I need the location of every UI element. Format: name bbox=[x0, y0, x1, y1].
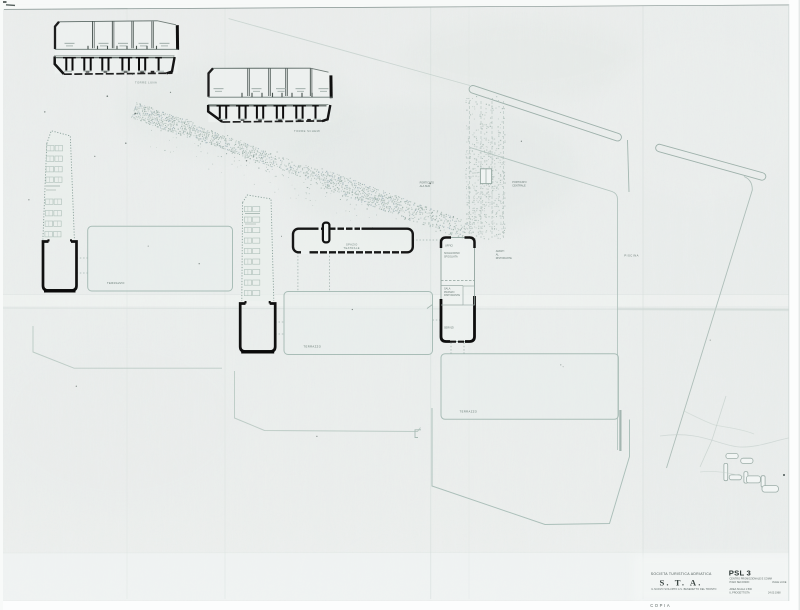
svg-text:SOCIETA TURISTICA ADRIATICA: SOCIETA TURISTICA ADRIATICA bbox=[651, 572, 712, 576]
svg-text:TORRE SCHEMI: TORRE SCHEMI bbox=[294, 129, 321, 133]
svg-text:AREA SCALA 1:500: AREA SCALA 1:500 bbox=[730, 588, 753, 591]
svg-text:PSL 3: PSL 3 bbox=[729, 568, 751, 577]
svg-text:UFFICI: UFFICI bbox=[445, 245, 453, 248]
svg-text:IL PROGETTISTA: IL PROGETTISTA bbox=[730, 592, 750, 595]
svg-text:IL NUOVO SVILUPPO A S. BENEDET: IL NUOVO SVILUPPO A S. BENEDETTO DEL TRO… bbox=[651, 588, 716, 591]
svg-text:SPAZIO: SPAZIO bbox=[346, 243, 358, 247]
svg-text:PIANI SECONDO: PIANI SECONDO bbox=[730, 581, 750, 584]
svg-text:CENTRO PROMOZIONALE E COMM: CENTRO PROMOZIONALE E COMM bbox=[730, 578, 772, 581]
svg-text:PISCINA: PISCINA bbox=[624, 253, 639, 257]
svg-text:SERVIZI: SERVIZI bbox=[444, 326, 454, 329]
svg-text:COPIA: COPIA bbox=[650, 603, 671, 608]
svg-text:RISTORANTE: RISTORANTE bbox=[444, 294, 460, 297]
svg-text:TORRE LUNA: TORRE LUNA bbox=[135, 81, 157, 85]
svg-text:TERRAZZO: TERRAZZO bbox=[460, 409, 478, 413]
svg-text:TEATRALE: TEATRALE bbox=[344, 246, 360, 250]
svg-text:RISTORANTE: RISTORANTE bbox=[496, 257, 512, 260]
svg-text:CENTRALE: CENTRALE bbox=[512, 185, 526, 188]
svg-text:SFOGLIATA: SFOGLIATA bbox=[444, 256, 458, 259]
svg-text:TERRAZZO: TERRAZZO bbox=[107, 281, 125, 285]
svg-text:24.03.1968: 24.03.1968 bbox=[768, 592, 781, 595]
svg-text:VIALE LUCE: VIALE LUCE bbox=[772, 581, 787, 584]
svg-text:S. T. A.: S. T. A. bbox=[660, 578, 703, 588]
svg-text:ALA SUD: ALA SUD bbox=[420, 185, 431, 188]
svg-text:TERRAZZO: TERRAZZO bbox=[304, 345, 322, 349]
